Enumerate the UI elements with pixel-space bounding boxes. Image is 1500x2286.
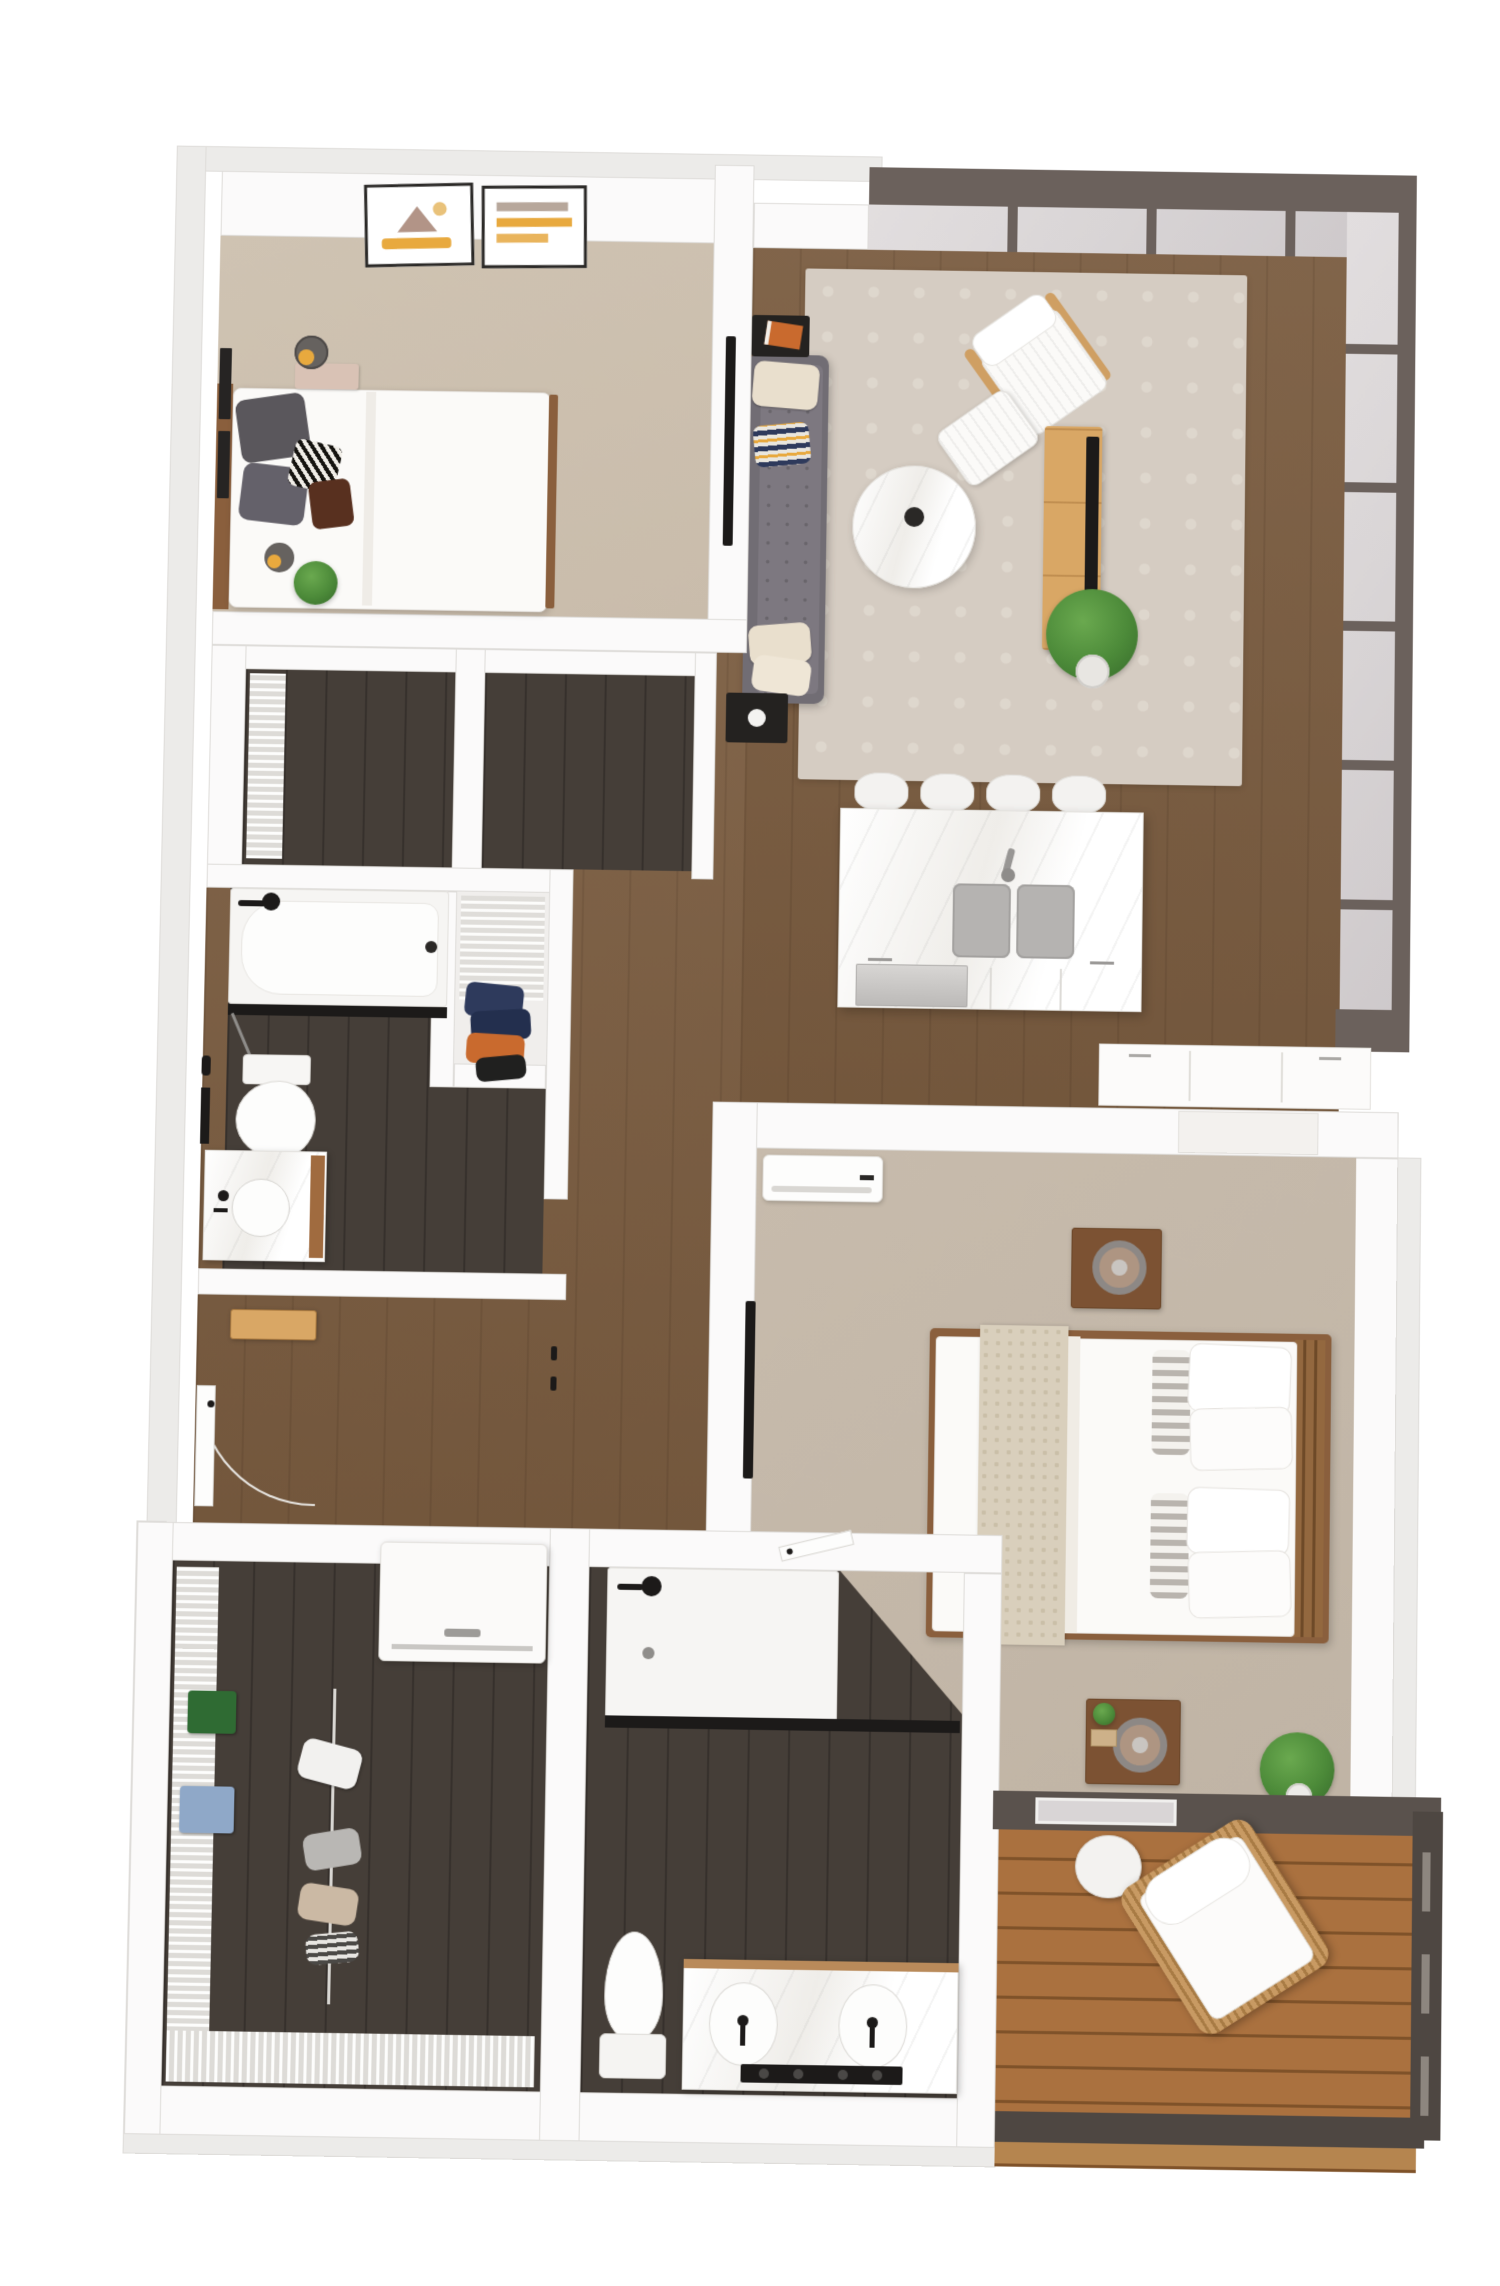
ac-unit xyxy=(762,1154,883,1202)
tray-knob xyxy=(872,2070,882,2080)
tray-knob xyxy=(838,2070,848,2080)
hall-closet-floor xyxy=(482,673,695,871)
pillow-striped xyxy=(1150,1493,1189,1599)
tray-knob xyxy=(759,2068,769,2078)
lamp-glow xyxy=(298,349,314,365)
art-bar xyxy=(497,202,568,211)
closet-block-wall-left xyxy=(207,645,247,872)
entry-console xyxy=(230,1309,317,1341)
bath2-sconce xyxy=(201,1055,210,1075)
cabinet-seam xyxy=(1059,969,1062,1011)
toilet-tank xyxy=(599,2033,667,2079)
cabinet-seam xyxy=(1189,1051,1192,1101)
nightstand-book xyxy=(1091,1729,1117,1747)
leaning-frame xyxy=(217,431,230,498)
bath2-mirror xyxy=(200,1087,210,1143)
bedroom2-bed xyxy=(212,384,560,615)
faucet-stem xyxy=(740,2025,745,2046)
sofa-pillow-cream xyxy=(750,654,812,697)
rail-slit xyxy=(1421,1954,1430,2013)
tray-knob xyxy=(793,2069,803,2079)
sofa xyxy=(742,354,829,704)
faucet-handle xyxy=(214,1208,228,1212)
pillow xyxy=(1189,1407,1293,1472)
shower-head xyxy=(641,1576,661,1597)
wall-art-frame xyxy=(364,183,474,268)
kitchen-wall-counter xyxy=(1098,1044,1371,1110)
closet-block-wall-right xyxy=(691,652,717,879)
cup xyxy=(748,709,766,727)
cabinet-handle xyxy=(868,958,892,961)
floor-plan-image xyxy=(0,0,1500,2286)
washer-dryer xyxy=(378,1541,547,1663)
faucet-base xyxy=(1001,868,1015,882)
sofa-pillow-striped xyxy=(752,422,811,468)
art-bar xyxy=(382,237,452,249)
pillow-brown xyxy=(308,478,355,530)
wall-art-frame xyxy=(482,185,587,268)
closet-wire-shelving-south xyxy=(166,2030,535,2087)
dishwasher xyxy=(855,964,968,1008)
ac-detail xyxy=(860,1175,874,1180)
folded-clothes-green xyxy=(187,1690,236,1733)
art-bar xyxy=(497,218,572,227)
bar-stool xyxy=(986,774,1040,813)
window-mullion xyxy=(1346,344,1398,355)
hanging-clothes-dark xyxy=(475,1054,527,1082)
sink-bowl xyxy=(952,883,1011,958)
vanity-wood-side xyxy=(309,1155,325,1258)
vanity-sink xyxy=(231,1178,290,1237)
entry-door xyxy=(194,1385,216,1506)
headboard-slats xyxy=(1292,1340,1325,1638)
master-east-wall xyxy=(1348,1158,1398,1801)
window-mullion xyxy=(1007,207,1018,252)
closet-block-wall-mid xyxy=(452,649,486,876)
window-mullion xyxy=(1285,211,1295,256)
window-mullion xyxy=(1341,899,1393,910)
window-wall-top-glass xyxy=(868,204,1377,257)
lamp-bulb xyxy=(1111,1259,1127,1275)
lamp-bulb xyxy=(1132,1737,1148,1754)
bar-stool xyxy=(854,772,908,811)
vanity-tray xyxy=(740,2064,902,2085)
living-north-wall-return xyxy=(753,203,869,250)
closet-door-handle xyxy=(550,1376,556,1390)
shower-arm xyxy=(617,1584,643,1590)
shower-drain xyxy=(642,1647,654,1659)
bath2-vanity xyxy=(202,1150,327,1262)
pillow xyxy=(1186,1487,1290,1557)
sink-bowl xyxy=(1016,884,1075,959)
balcony-east-rail xyxy=(1410,1811,1443,2140)
cabinet-seam xyxy=(1281,1052,1284,1102)
hanging-clothes-striped xyxy=(305,1931,360,1966)
bar-stool xyxy=(920,773,974,812)
nightstand-plant xyxy=(1093,1703,1115,1726)
closet-door-handle xyxy=(551,1346,557,1360)
window-wall-end-cap xyxy=(1335,1009,1409,1052)
ac-vent xyxy=(771,1186,871,1194)
pillow xyxy=(1187,1342,1292,1416)
window-mullion xyxy=(1343,621,1395,632)
closet-wire-shelf xyxy=(246,673,286,859)
window-wall-right-glass xyxy=(1339,212,1398,1052)
lamp-glow xyxy=(267,554,281,568)
side-table-south xyxy=(725,693,788,744)
primary-shower xyxy=(605,1567,839,1721)
door-handle xyxy=(786,1548,793,1555)
master-closet-niche xyxy=(1178,1111,1319,1155)
leaning-frame xyxy=(219,348,232,419)
toilet-bowl xyxy=(604,1931,664,2040)
door-handle xyxy=(207,1400,214,1407)
appliance-door-edge xyxy=(392,1644,533,1651)
cabinet-seam xyxy=(989,968,992,1010)
cabinet-handle xyxy=(1319,1057,1341,1060)
faucet-stem xyxy=(869,2027,874,2048)
art-triangle xyxy=(397,206,437,232)
window-mullion xyxy=(1342,760,1394,771)
bar-stool xyxy=(1052,775,1106,814)
bath2-tub xyxy=(228,888,449,1007)
cabinet-handle xyxy=(1090,961,1114,964)
folded-clothes-blue xyxy=(179,1786,234,1834)
tub-inner xyxy=(240,900,439,997)
side-table-north xyxy=(752,315,810,357)
pillow-striped xyxy=(1151,1350,1190,1455)
appliance-control xyxy=(444,1629,480,1638)
kettle-decor xyxy=(904,507,924,527)
sofa-pillow-cream xyxy=(751,360,820,411)
art-dot xyxy=(433,202,447,216)
cabinet-handle xyxy=(1129,1054,1151,1057)
window-mullion xyxy=(1344,482,1396,493)
art-bar xyxy=(497,234,549,243)
bath2-toilet xyxy=(227,1054,325,1166)
pillow xyxy=(1187,1550,1291,1619)
primary-toilet xyxy=(593,1931,672,2085)
kitchen-island xyxy=(837,808,1143,1012)
apartment-plan xyxy=(0,0,1500,2286)
vanity-faucet xyxy=(218,1190,229,1201)
toilet-bowl xyxy=(235,1080,317,1159)
rail-slit xyxy=(1420,2056,1429,2115)
window-mullion xyxy=(1146,209,1156,254)
balcony-sliding-door xyxy=(1035,1797,1177,1826)
primary-vanity xyxy=(682,1959,959,2094)
book xyxy=(764,321,803,350)
rail-slit xyxy=(1422,1852,1431,1911)
